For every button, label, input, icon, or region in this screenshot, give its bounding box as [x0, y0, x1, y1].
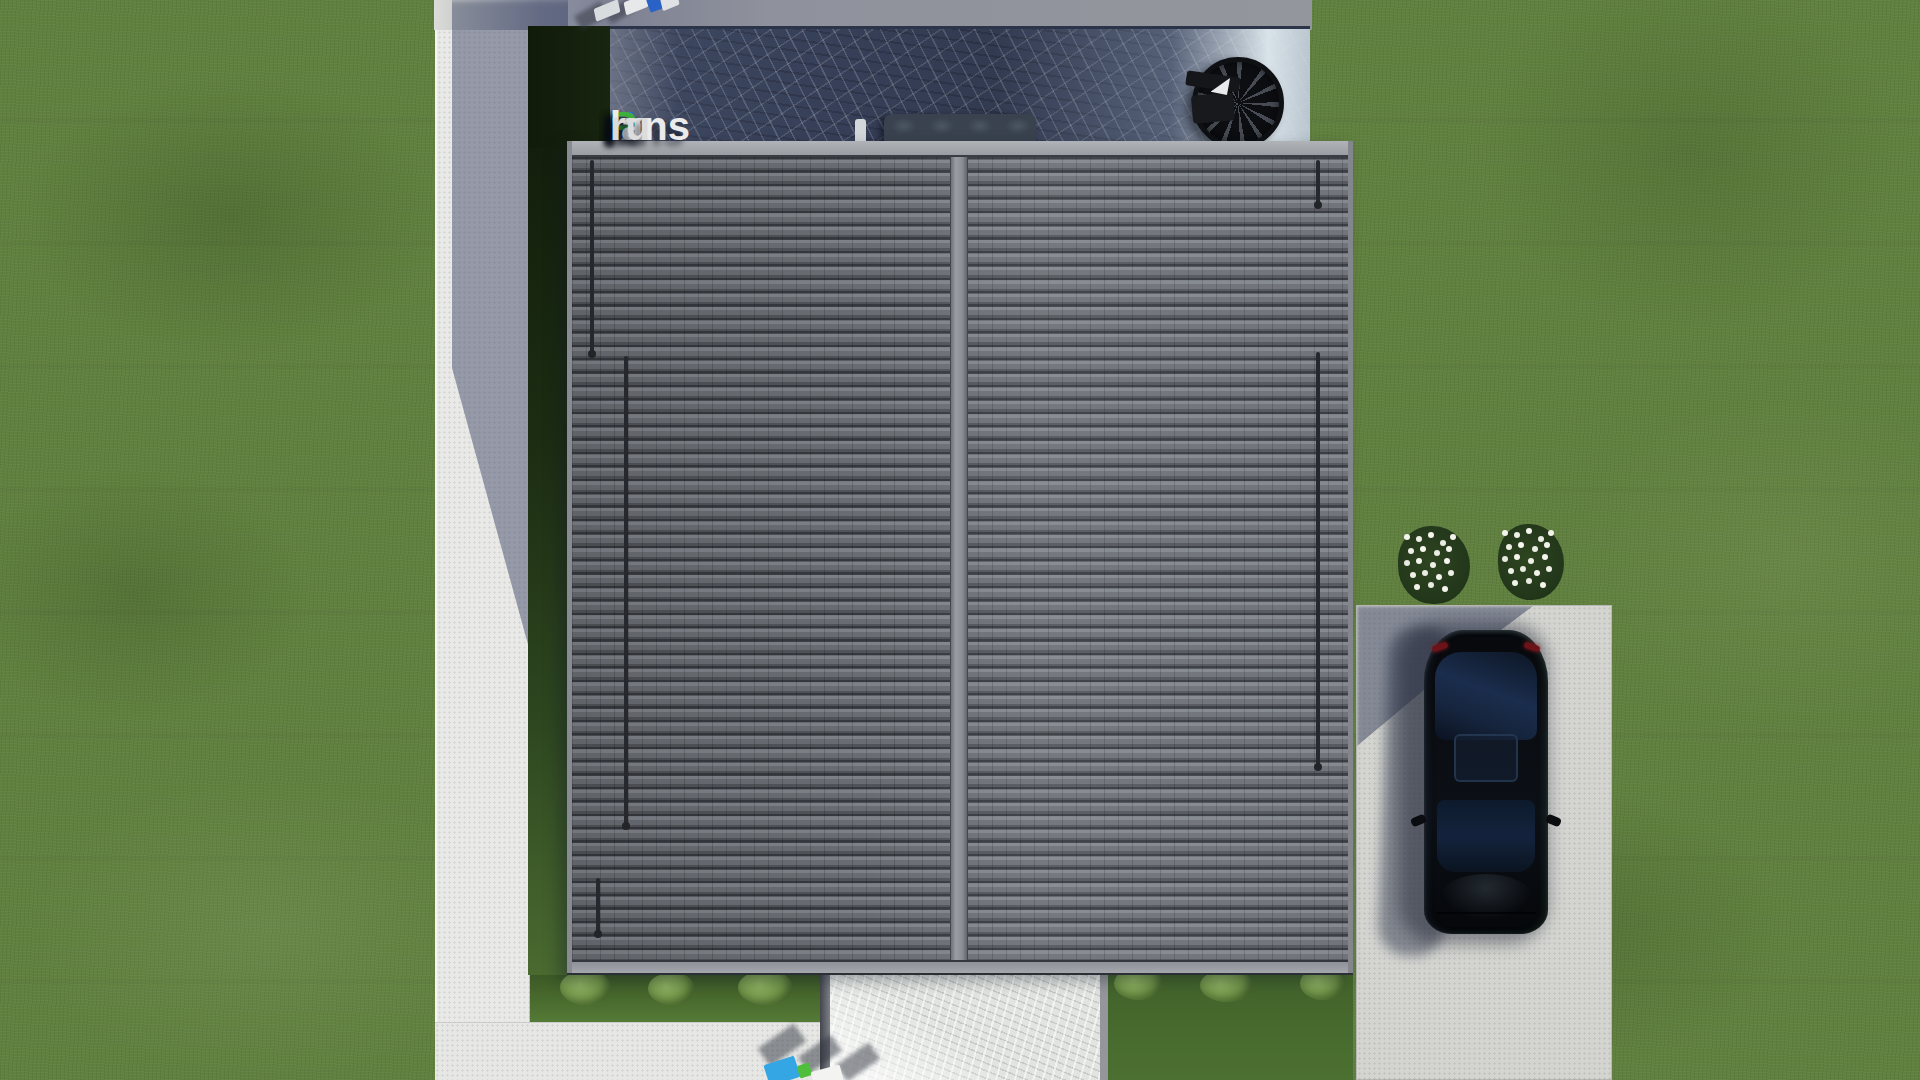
parked-car: [1424, 630, 1548, 934]
car-rear-window: [1435, 652, 1537, 740]
shaded-grass-strip: [528, 148, 568, 975]
rear-lawn-patch: [1108, 970, 1353, 1080]
rear-garden-strip: [530, 975, 820, 1022]
roof-drain-channel: [596, 878, 600, 934]
left-walkway: [435, 0, 530, 1080]
roof-drain-channel: [1316, 160, 1320, 205]
shrub: [738, 971, 792, 1005]
staircase-steps: [1191, 92, 1235, 124]
garden-wall: [1100, 968, 1108, 1080]
roof-edge-right: [1348, 141, 1353, 973]
house-roof: [567, 141, 1353, 975]
watermark-segment: ru: [610, 104, 650, 149]
roof-drain-channel: [624, 356, 628, 826]
white-flowers: [1404, 534, 1410, 540]
shaded-hedge: [528, 26, 612, 148]
shrub: [648, 973, 694, 1005]
roof-drain-channel: [1316, 352, 1320, 767]
car-body: [1424, 630, 1548, 934]
flower-bush: [1398, 526, 1470, 604]
car-windshield: [1437, 800, 1535, 872]
shrub: [560, 971, 610, 1005]
roof-fascia-bottom: [567, 960, 1353, 973]
roof-ridge: [950, 141, 968, 962]
bumper-seam: [1436, 912, 1536, 914]
white-flowers: [1502, 530, 1508, 536]
car-sunroof: [1454, 734, 1518, 782]
roof-drain-channel: [590, 160, 594, 354]
render-canvas: FixPlans.ru: [0, 0, 1920, 1080]
flower-bush: [1498, 524, 1564, 600]
roof-edge-left: [567, 141, 572, 973]
